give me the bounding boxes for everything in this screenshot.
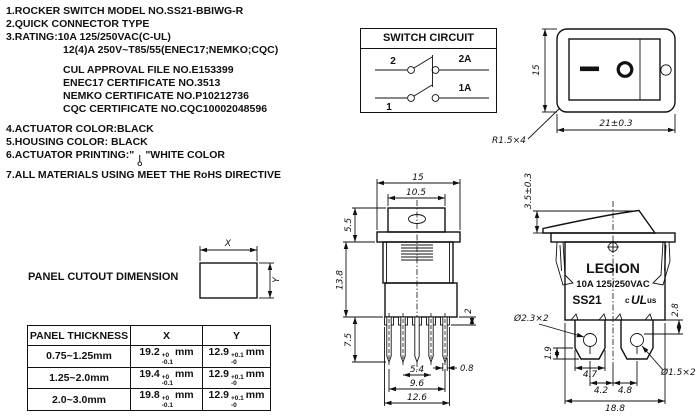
end-view-drawing: 15 10.5 5.5 13.8 7.5 2 (338, 170, 522, 419)
dim-label: 0.8 (460, 364, 474, 374)
y-cell: 12.9+0.1-0mm (203, 346, 271, 368)
x-cell: 19.8+0-0.1mm (131, 389, 203, 411)
dim-label: 2 (464, 308, 474, 313)
thickness-cell: 2.0~3.0mm (28, 389, 131, 411)
circuit-pole-bottom (375, 85, 489, 101)
spec-printing-prefix: 6.ACTUATOR PRINTING:" (6, 149, 134, 161)
dim-1-9: 1.9 (544, 346, 579, 360)
rating-label: 10A 125/250VAC (576, 279, 650, 290)
spec-list: 1.ROCKER SWITCH MODEL NO.SS21-BBIWG-R 2.… (6, 5, 358, 182)
dim-height-13-8: 13.8 (336, 242, 384, 317)
dim-label: 18.8 (605, 404, 625, 414)
dim-width-15: 15 (377, 173, 460, 230)
spec-cert-cul: CUL APPROVAL FILE NO.E153399 (6, 64, 358, 77)
svg-text:c: c (625, 296, 630, 305)
lower-body (385, 283, 457, 317)
front-view-drawing: 15 21±0.3 R1.5×4 (488, 2, 700, 154)
switch-circuit-title: SWITCH CIRCUIT (361, 29, 496, 49)
dim-pin-0-8: 0.8 (433, 358, 474, 374)
dim-label: 12.6 (407, 393, 427, 403)
terminal-2-label: 2 (390, 56, 396, 67)
dim-2-8: 2.8 (644, 303, 683, 334)
spec-rohs: 7.ALL MATERIALS USING MEET THE RoHS DIRE… (6, 169, 358, 182)
header-y: Y (203, 326, 271, 346)
thickness-cell: 0.75~1.25mm (28, 346, 131, 368)
dim-label: 5.5 (344, 218, 354, 233)
spacer (6, 57, 358, 64)
dim-label-x: X (224, 239, 232, 249)
dim-height-7-5: 7.5 (344, 317, 386, 362)
dim-label-y: Y (272, 276, 282, 283)
spec-cert-nemko: NEMKO CERTIFICATE NO.P10212736 (6, 90, 358, 103)
dim-height-5-5: 5.5 (344, 208, 386, 242)
dim-label-21: 21±0.3 (599, 119, 633, 129)
rocker-actuator (543, 211, 655, 234)
x-cell: 19.2+0-0.1mm (131, 346, 203, 368)
svg-text:UL: UL (631, 293, 647, 307)
spec-actuator-color: 4.ACTUATOR COLOR:BLACK (6, 123, 358, 136)
dim-label: 1.9 (544, 346, 554, 360)
header-panel-thickness: PANEL THICKNESS (28, 326, 131, 346)
dim-label: 9.6 (410, 379, 425, 389)
terminal-pins (385, 313, 450, 367)
spec-housing-color: 5.HOUSING COLOR: BLACK (6, 136, 358, 149)
spec-rating: 3.RATING:10A 125/250VAC(C-UL) (6, 31, 358, 44)
radius-label: R1.5×4 (492, 136, 526, 146)
dim-y: Y (259, 263, 282, 298)
spec-printing: 6.ACTUATOR PRINTING:"|O"WHITE COLOR (6, 149, 358, 169)
dim-width-10-5: 10.5 (388, 188, 445, 206)
dim-label: 5.4 (410, 365, 425, 375)
table-row: 1.25~2.0mm 19.4+0-0.1mm 12.9+0.1-0mm (28, 367, 271, 389)
dim-label: 2.8 (671, 303, 681, 317)
dim-x: X (200, 239, 257, 261)
dim-label: 3.5±0.3 (524, 173, 534, 209)
spec-cert-enec: ENEC17 CERTIFICATE NO.3513 (6, 77, 358, 90)
dim-height-15: 15 (532, 29, 557, 112)
dim-rocker-3-5: 3.5±0.3 (524, 173, 637, 233)
panel-cutout-drawing: X Y (190, 237, 290, 307)
spec-printing-suffix: "WHITE COLOR (145, 149, 225, 161)
terminal-2a-label: 2A (459, 54, 472, 65)
dim-label: 4.2 (594, 386, 609, 396)
y-cell: 12.9+0.1-0mm (203, 367, 271, 389)
dim-width-21: 21±0.3 (557, 114, 675, 133)
terminal-1-label: 1 (386, 102, 392, 113)
clip-slot (560, 245, 562, 271)
x-cell: 19.4+0-0.1mm (131, 367, 203, 389)
spacer (6, 116, 358, 123)
model-label: SS21 (572, 293, 602, 307)
on-off-symbol-icon: |O (137, 156, 142, 169)
snap-clip-right (653, 242, 670, 285)
cutout-rect (200, 263, 257, 298)
panel-cutout-title: PANEL CUTOUT DIMENSION (28, 271, 178, 283)
mounting-flange (377, 232, 460, 242)
rocker-switch-datasheet: 1.ROCKER SWITCH MODEL NO.SS21-BBIWG-R 2.… (0, 0, 700, 419)
svg-text:us: us (647, 296, 657, 305)
y-cell: 12.9+0.1-0mm (203, 389, 271, 411)
side-view-drawing: LEGION 10A 125/250VAC SS21 c UL us 3.5±0… (513, 163, 700, 419)
spec-rating-2: 12(4)A 250V~T85/55(ENEC17;NEMKO;CQC) (6, 44, 358, 57)
brand-label: LEGION (586, 260, 640, 276)
dim-label: 15 (412, 173, 424, 183)
dim-label: 4.8 (618, 386, 633, 396)
dim-label: 13.8 (336, 270, 346, 290)
callout-hole-small: Ø1.5×2 (642, 346, 696, 378)
table-row: 2.0~3.0mm 19.8+0-0.1mm 12.9+0.1-0mm (28, 389, 271, 411)
dim-label: 7.5 (344, 333, 354, 348)
dim-label: 10.5 (406, 188, 426, 198)
dim-18-8: 18.8 (565, 323, 665, 414)
table-row: 0.75~1.25mm 19.2+0-0.1mm 12.9+0.1-0mm (28, 346, 271, 368)
thickness-cell: 1.25~2.0mm (28, 367, 131, 389)
spec-cert-cqc: CQC CERTIFICATE NO.CQC10002048596 (6, 103, 358, 116)
dim-label-15: 15 (532, 64, 542, 76)
spec-connector: 2.QUICK CONNECTOR TYPE (6, 18, 358, 31)
dim-pitch-5-4: 5.4 (403, 365, 431, 375)
switch-circuit-diagram: 2 2A 1 1A (361, 49, 494, 111)
on-mark (580, 67, 599, 72)
header-x: X (131, 326, 203, 346)
ul-recognized-mark: c UL us (625, 293, 657, 307)
switch-circuit-panel: SWITCH CIRCUIT 2 2A 1 1A (360, 28, 497, 113)
bezel-hole (661, 65, 671, 75)
panel-thickness-table: PANEL THICKNESS X Y 0.75~1.25mm 19.2+0-0… (27, 325, 271, 411)
off-mark (618, 63, 632, 77)
actuator (388, 208, 445, 232)
radius-callout: R1.5×4 (492, 108, 560, 146)
spec-model: 1.ROCKER SWITCH MODEL NO.SS21-BBIWG-R (6, 5, 358, 18)
hole-big-label: Ø2.3×2 (513, 313, 549, 324)
terminal-1a-label: 1A (459, 83, 472, 94)
table-header-row: PANEL THICKNESS X Y (28, 326, 271, 346)
